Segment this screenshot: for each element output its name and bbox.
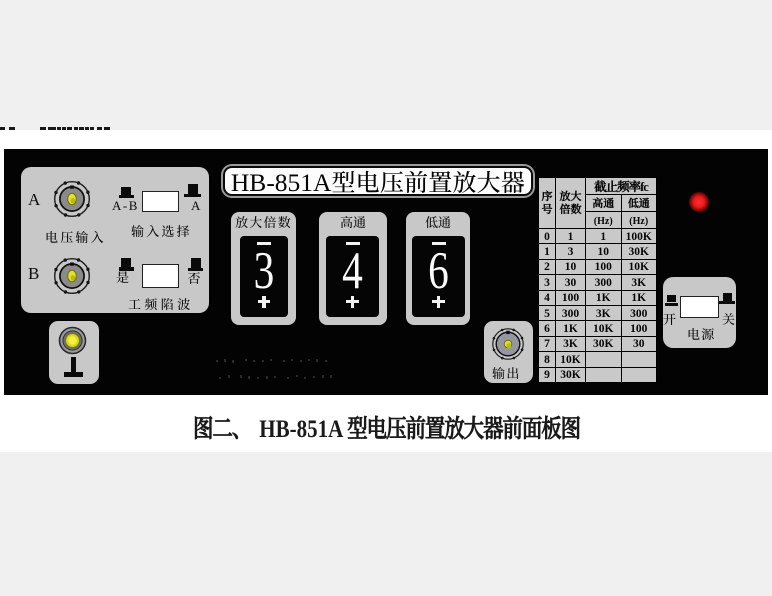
svg-text:6: 6 [428,242,449,300]
svg-text:4: 4 [342,242,363,300]
svg-text:3: 3 [254,242,275,300]
